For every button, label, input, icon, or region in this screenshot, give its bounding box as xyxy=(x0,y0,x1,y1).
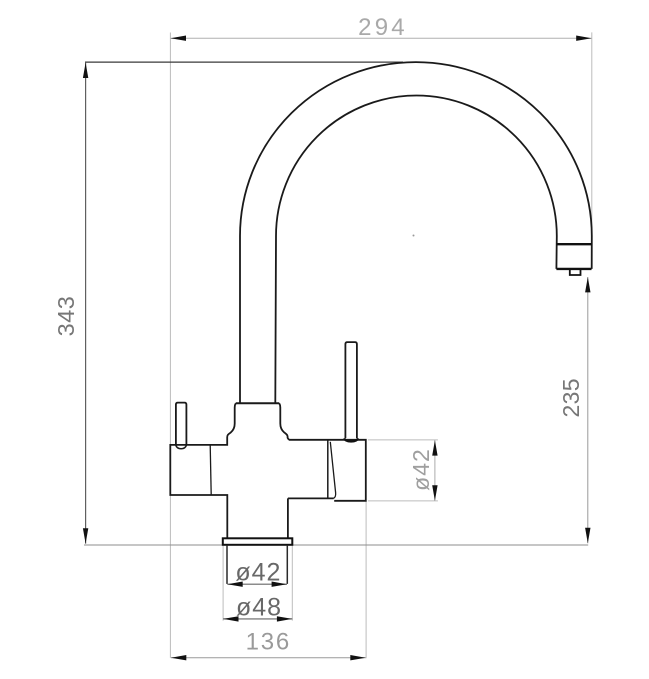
svg-text:ø42: ø42 xyxy=(408,448,434,491)
svg-text:294: 294 xyxy=(358,14,408,41)
svg-text:235: 235 xyxy=(558,378,584,417)
svg-text:136: 136 xyxy=(246,629,291,656)
svg-text:ø42: ø42 xyxy=(235,559,281,587)
svg-text:343: 343 xyxy=(53,296,79,337)
svg-text:ø48: ø48 xyxy=(236,594,282,622)
